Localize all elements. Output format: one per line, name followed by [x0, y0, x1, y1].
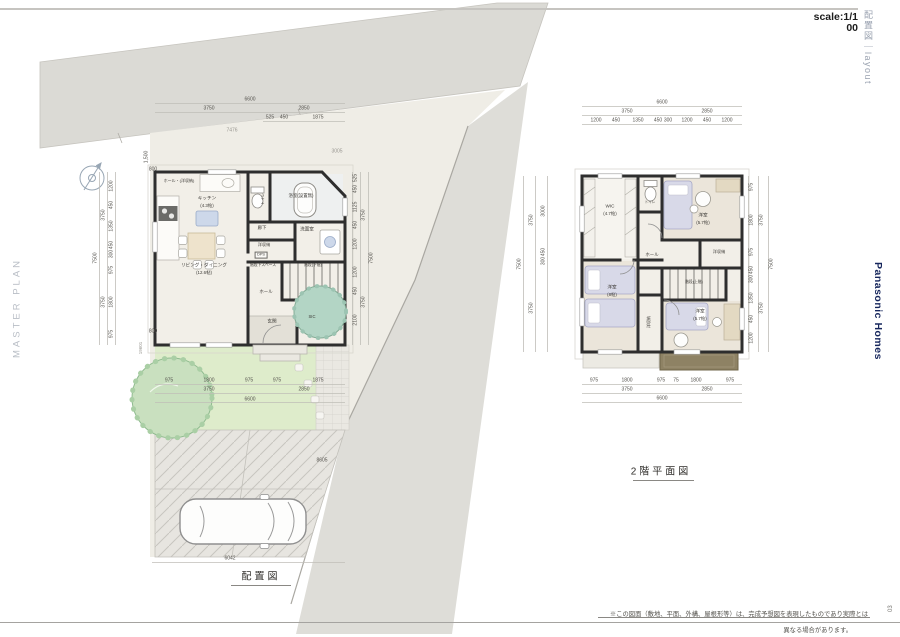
- dim-label: 1800: [110, 296, 115, 307]
- room-label: DPS: [255, 252, 268, 259]
- scale-line2: 00: [814, 23, 858, 34]
- dim-label: 975: [110, 266, 115, 274]
- dim-label: 975: [750, 248, 755, 256]
- chair-bottom-right: [713, 318, 722, 327]
- dim-label: 1125: [354, 202, 359, 213]
- dim-label: 3005: [331, 150, 342, 155]
- dim-label: 450: [280, 116, 288, 121]
- house-2f: [575, 169, 749, 370]
- scale-indicator: scale:1/1 00: [814, 12, 858, 35]
- dim-label: 975: [750, 183, 755, 191]
- dim-label: 1800: [690, 379, 701, 384]
- dim-label: 1875: [312, 116, 323, 121]
- room-label: 階段下スペース: [250, 264, 276, 268]
- dim-label: 6042: [224, 557, 235, 562]
- dim-label: 2850: [298, 388, 309, 393]
- room-label: (4.7帖): [603, 212, 616, 216]
- dim-label: 8605: [316, 459, 327, 464]
- dim-label: 450: [750, 315, 755, 323]
- dim-label: 450: [750, 266, 755, 274]
- chair-top-right: [690, 205, 698, 213]
- dim-label: 525: [266, 116, 274, 121]
- kitchen-island: [196, 211, 218, 226]
- dim-label: 1200: [750, 332, 755, 343]
- room-label: 廊下: [258, 226, 267, 230]
- dim-label: 3750: [760, 214, 765, 225]
- dim-label: 2850: [701, 388, 712, 393]
- dim-label: 450: [354, 185, 359, 193]
- disclaimer-line2: 異なる場合があります。: [783, 625, 852, 634]
- room-label: 洋室: [607, 286, 616, 291]
- room-label: 洋室: [698, 214, 707, 219]
- dim-label: 450: [110, 201, 115, 209]
- toilet-2f: [644, 181, 657, 202]
- north-compass-icon: [80, 163, 104, 190]
- dim-label: 450: [542, 248, 547, 256]
- dim-label: 1800: [621, 379, 632, 384]
- dim-label: 450: [354, 287, 359, 295]
- washbasin: [320, 230, 340, 254]
- room-label: 洋室: [695, 310, 704, 315]
- dim-label: 1800: [203, 379, 214, 384]
- dim-label: 975: [245, 379, 253, 384]
- dim-label: 7500: [370, 252, 375, 263]
- dim-label: 3750: [102, 296, 107, 307]
- dim-label: 300: [664, 119, 672, 124]
- room-label: ホール・(洋収納): [164, 179, 195, 183]
- brand-logo-vertical: Panasonic Homes: [872, 262, 884, 360]
- room-label: WIC: [606, 205, 615, 210]
- dim-label: 3750: [621, 388, 632, 393]
- round-table-top-right: [696, 192, 711, 207]
- dim-label: 300: [110, 250, 115, 258]
- dim-label: 975: [657, 379, 665, 384]
- dim-label: 300: [750, 275, 755, 283]
- dim-label: 1200: [681, 119, 692, 124]
- porch-steps: [253, 345, 307, 361]
- bed-top-right: [664, 181, 692, 229]
- dim-label: 3750: [203, 107, 214, 112]
- frame-bottom-rule: [0, 622, 900, 623]
- dim-label: 75: [673, 379, 679, 384]
- room-label: ホール: [645, 253, 658, 257]
- room-label: 洋収納: [258, 243, 271, 247]
- dim-label: 3750: [203, 388, 214, 393]
- floorplan-drawing: [0, 0, 900, 637]
- caption-2f-underline: [633, 480, 694, 481]
- room-label: リビング・ダイニング: [181, 264, 227, 269]
- dim-label: 525: [354, 174, 359, 182]
- dim-label: 450: [110, 241, 115, 249]
- dim-label: 975: [273, 379, 281, 384]
- dim-label: 3750: [621, 110, 632, 115]
- room-label: 玄関: [267, 320, 276, 325]
- dim-label: 3750: [362, 209, 367, 220]
- tree-small: [294, 286, 346, 338]
- caption-site-plan: 配置図: [242, 568, 281, 583]
- dim-label: 800: [149, 168, 157, 173]
- dim-label: 6600: [656, 397, 667, 402]
- dim-label: 7476: [226, 129, 237, 134]
- dim-label: 3750: [362, 296, 367, 307]
- dim-label: 1200: [110, 180, 115, 191]
- dim-label: 975: [165, 379, 173, 384]
- disclaimer-line1: ※この図面（敷地、平面、外構、屋根形等）は、完成予想図を表現したものであり実際と…: [610, 609, 868, 618]
- frame-top-rule: [0, 8, 858, 10]
- dim-label: 3750: [102, 209, 107, 220]
- dim-label: 2850: [298, 107, 309, 112]
- dim-label: 7500: [518, 258, 523, 269]
- dim-label: 800: [149, 330, 157, 335]
- caption-site-underline: [231, 585, 291, 586]
- room-label: 階段(下階): [304, 264, 322, 268]
- blueprint-page: 6600375028505254501875747630058008001,50…: [0, 0, 900, 637]
- dim-label: 6600: [656, 101, 667, 106]
- dim-label: 1350: [110, 220, 115, 231]
- caption-2f-plan: 2階平面図: [631, 463, 692, 478]
- room-label: キッチン: [198, 197, 216, 202]
- room-label: (8帖): [607, 293, 617, 297]
- room-label: (5.7帖): [693, 317, 706, 321]
- bathtub: [294, 183, 316, 217]
- room-label: 洋収納: [713, 250, 726, 254]
- dim-label: 6600: [244, 98, 255, 103]
- sheet-title-vertical: 配置図｜layout: [862, 10, 875, 85]
- dim-label: 6600: [244, 398, 255, 403]
- dim-label: 1200: [590, 119, 601, 124]
- dim-label: 1350: [750, 292, 755, 303]
- room-label: 浴室(設置無): [289, 194, 314, 198]
- room-label: トイレ: [645, 201, 656, 205]
- page-number: 03: [888, 605, 894, 612]
- dim-label: 450: [703, 119, 711, 124]
- dim-label: 1350: [632, 119, 643, 124]
- dim-label: 2850: [701, 110, 712, 115]
- dim-label: 450: [654, 119, 662, 124]
- dim-label: 450: [354, 221, 359, 229]
- dim-label: 1200: [721, 119, 732, 124]
- desk-bottom-right: [724, 304, 740, 340]
- room-label: (4.3帖): [200, 204, 213, 208]
- room-label: ホール: [259, 290, 272, 294]
- dim-label: 7500: [94, 252, 99, 263]
- master-plan-label: MASTER PLAN: [12, 258, 23, 358]
- dim-label: 19601: [139, 342, 144, 355]
- room-label: 洗面室: [300, 228, 314, 233]
- dim-label: 975: [110, 330, 115, 338]
- dim-label: 2100: [354, 314, 359, 325]
- dim-label: 975: [590, 379, 598, 384]
- room-label: 洋収納: [647, 316, 651, 328]
- dim-label: 3000: [542, 205, 547, 216]
- room-label: (5.7帖): [696, 221, 709, 225]
- dim-label: 1800: [750, 214, 755, 225]
- dim-label: 3750: [530, 302, 535, 313]
- tree-large: [132, 358, 212, 438]
- dim-label: 7500: [770, 258, 775, 269]
- dim-label: 450: [612, 119, 620, 124]
- dim-label: 1200: [354, 266, 359, 277]
- dim-label: 3750: [530, 214, 535, 225]
- dim-label: 1875: [312, 379, 323, 384]
- car: [180, 495, 306, 549]
- dim-label: 1200: [354, 238, 359, 249]
- room-label: (12.6帖): [196, 271, 212, 275]
- dim-label: 3750: [760, 302, 765, 313]
- dim-label: 1,500: [145, 151, 150, 164]
- room-label: 階段(上階): [685, 281, 703, 285]
- room-label: トイレ: [262, 193, 266, 204]
- dim-label: 975: [726, 379, 734, 384]
- dim-label: 300: [542, 257, 547, 265]
- desk-top-right: [716, 179, 740, 192]
- round-table-bottom-right: [674, 333, 688, 347]
- room-label: SIC: [309, 315, 316, 319]
